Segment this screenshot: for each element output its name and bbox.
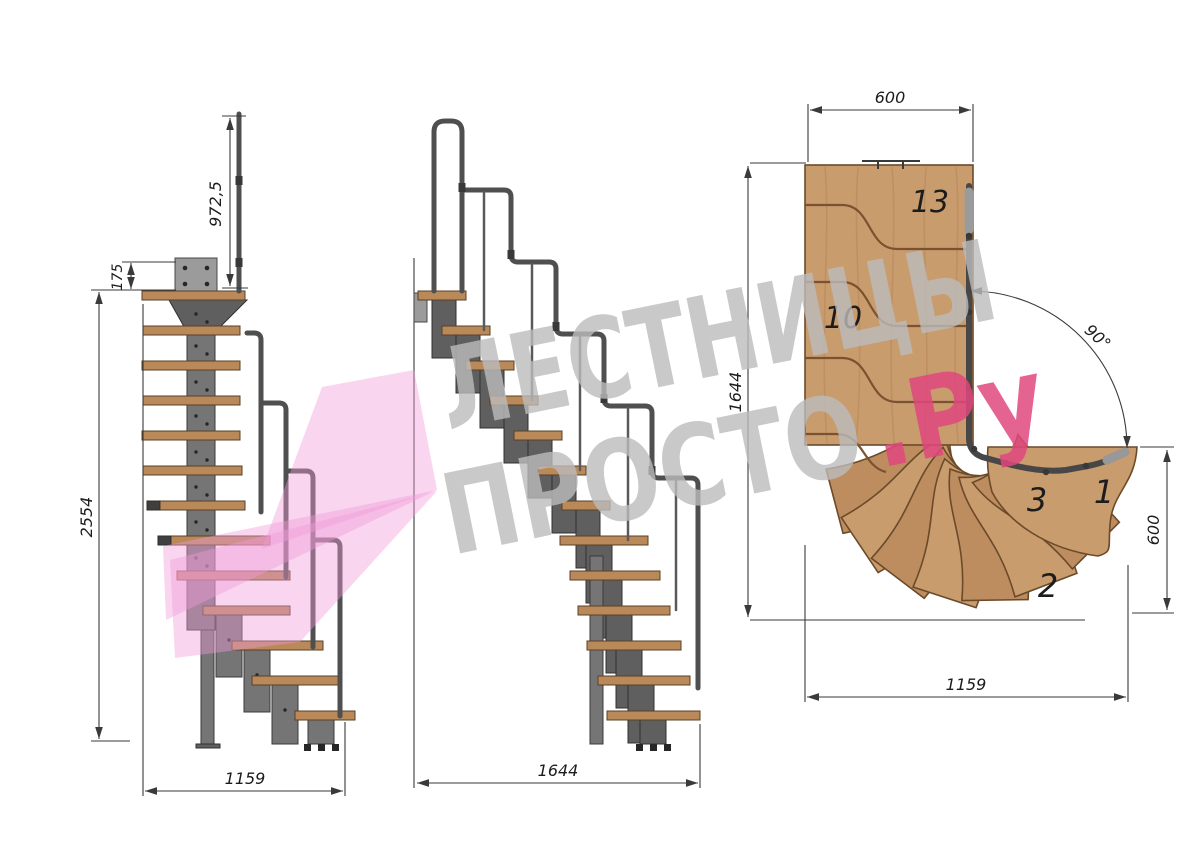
post-base [196, 744, 220, 748]
step-label-2: 2 [1038, 567, 1058, 605]
rail-joint [459, 183, 466, 192]
rail-joint [1083, 463, 1089, 469]
dim-label: 90° [1081, 320, 1115, 353]
step-label-13: 13 [911, 185, 949, 220]
handrail-loop [434, 121, 462, 291]
tread [142, 291, 245, 300]
drawing-canvas: 972,5 175 2554 1159 [0, 0, 1200, 849]
column-module [308, 718, 334, 744]
dim-label: 972,5 [206, 181, 225, 227]
handrail-post [247, 333, 261, 512]
tread [578, 606, 670, 615]
tread [570, 571, 660, 580]
dim-label: 600 [875, 88, 906, 107]
base-feet [304, 744, 339, 751]
step-label-1: 1 [1094, 473, 1114, 511]
tread [147, 501, 245, 510]
rail-joint [236, 258, 243, 267]
tread [143, 396, 240, 405]
step-label-3: 3 [1027, 481, 1047, 519]
dim-label: 1159 [946, 675, 987, 694]
dim-label: 1644 [538, 761, 579, 780]
rail-joint [508, 250, 515, 259]
dim-label: 1159 [225, 769, 266, 788]
tread [143, 466, 242, 475]
rail-joint [1043, 469, 1049, 475]
tread [142, 431, 240, 440]
dim-plan-entry-width: 600 [808, 88, 973, 162]
dim-label: 600 [1144, 515, 1163, 546]
dim-side-total-height: 2554 [77, 290, 176, 741]
column-module [640, 718, 666, 744]
rail-joint [236, 176, 243, 185]
dim-label: 2554 [77, 497, 96, 538]
tread [607, 711, 700, 720]
tread [598, 676, 690, 685]
tread [143, 326, 240, 335]
tread [142, 361, 240, 370]
tread-end-cap [158, 536, 171, 545]
column-module [272, 685, 298, 744]
staircase-technical-drawing: 972,5 175 2554 1159 [0, 0, 1200, 849]
dim-side-plate-height: 175 [110, 262, 176, 290]
tread [295, 711, 355, 720]
tread [418, 291, 466, 300]
wall-mount-plate [175, 258, 217, 293]
tread [587, 641, 681, 650]
dim-label: 175 [110, 264, 126, 291]
tread [252, 676, 340, 685]
tread-end-cap [147, 501, 160, 510]
dim-plan-exit-width: 600 [1132, 447, 1174, 613]
